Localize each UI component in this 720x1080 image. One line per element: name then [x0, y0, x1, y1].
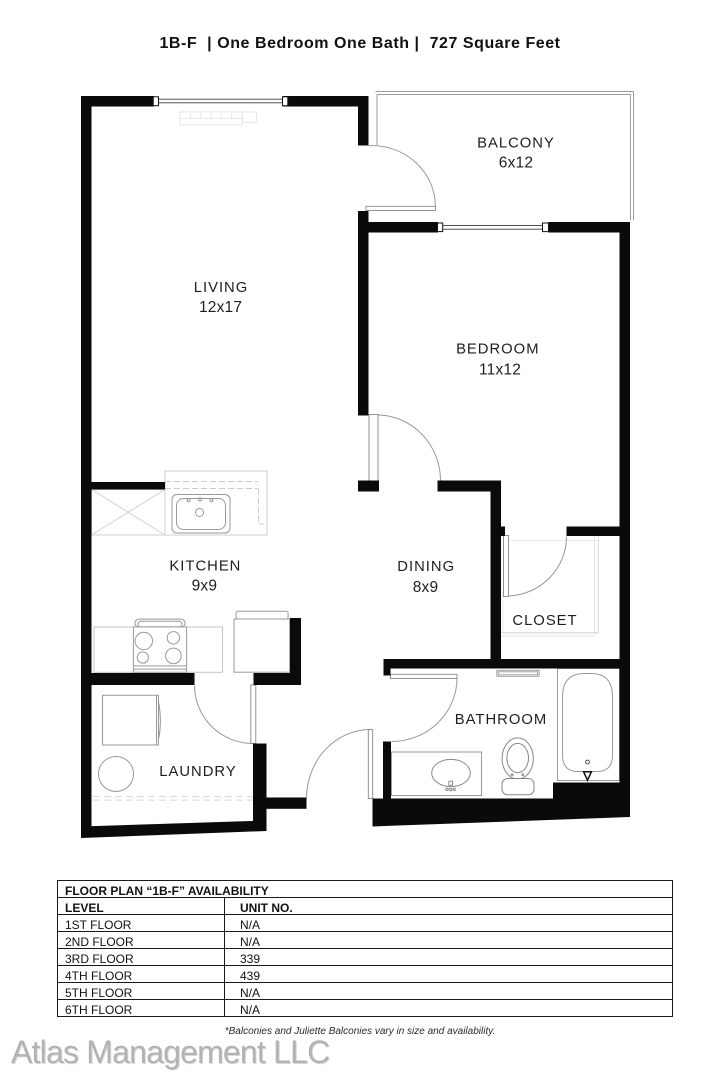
- svg-text:BALCONY: BALCONY: [477, 136, 555, 152]
- svg-text:BEDROOM: BEDROOM: [456, 342, 539, 358]
- svg-text:LAUNDRY: LAUNDRY: [159, 764, 236, 780]
- svg-text:KITCHEN: KITCHEN: [169, 559, 241, 575]
- svg-text:BATHROOM: BATHROOM: [455, 712, 547, 728]
- svg-text:9x9: 9x9: [192, 578, 218, 595]
- svg-text:8x9: 8x9: [413, 579, 439, 596]
- svg-text:11x12: 11x12: [479, 362, 521, 379]
- svg-text:6x12: 6x12: [499, 155, 533, 172]
- svg-text:12x17: 12x17: [199, 299, 242, 316]
- svg-text:CLOSET: CLOSET: [512, 613, 577, 629]
- svg-text:LIVING: LIVING: [194, 280, 249, 296]
- svg-text:DINING: DINING: [397, 559, 455, 575]
